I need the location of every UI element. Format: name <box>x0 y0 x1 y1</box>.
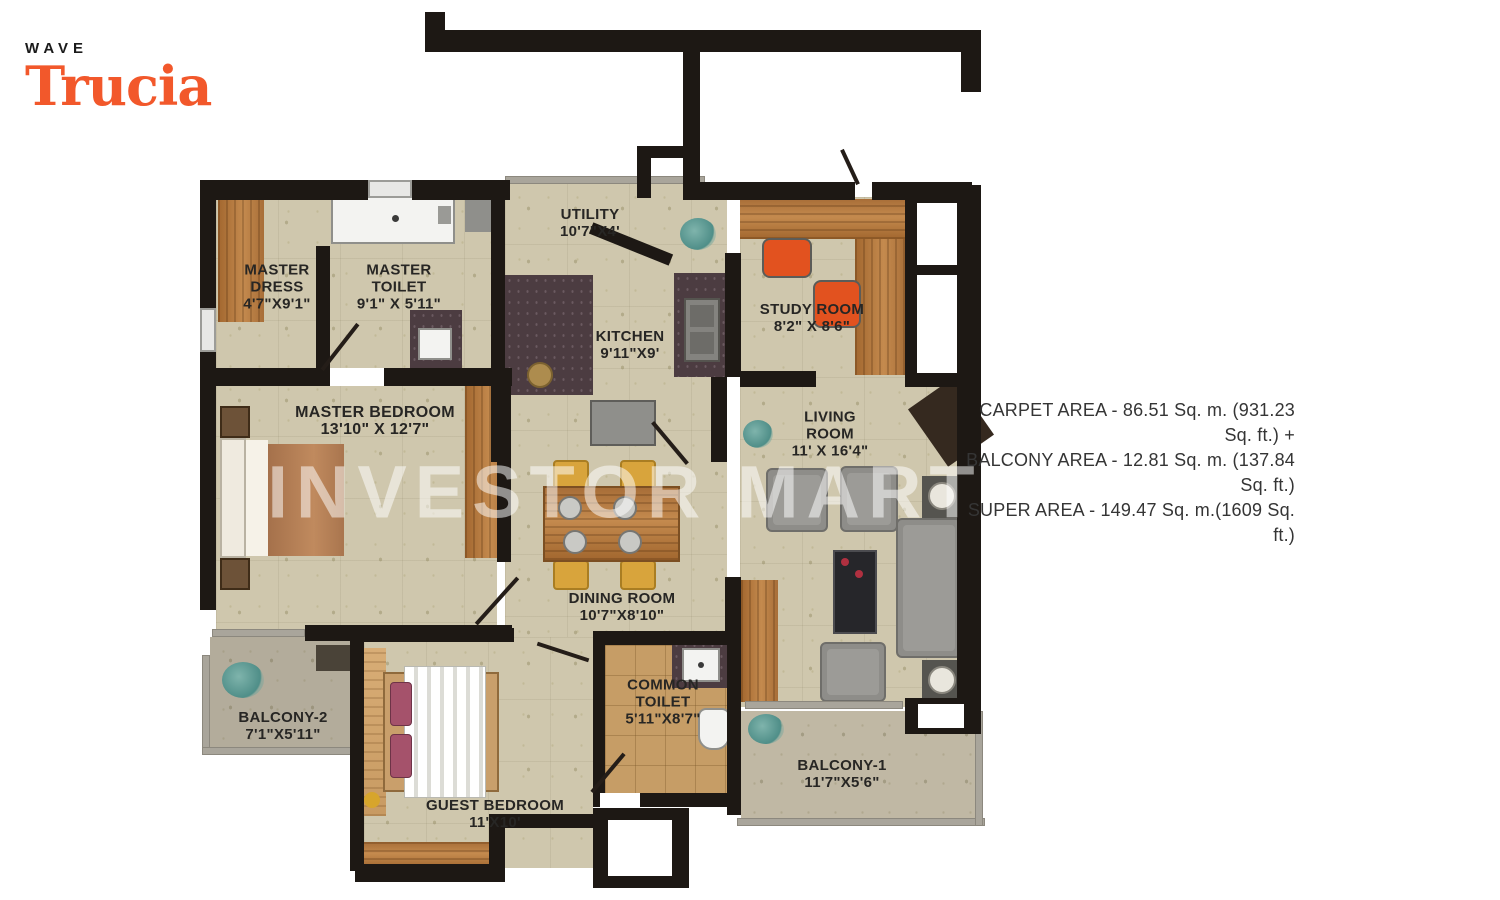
wall <box>683 52 700 198</box>
plant-balcony-2 <box>222 662 264 698</box>
study-chair <box>762 238 812 278</box>
label-dining: DINING ROOM10'7"X8'10" <box>569 590 676 624</box>
wall <box>725 577 741 637</box>
shower-drain <box>698 662 704 668</box>
window <box>368 180 412 198</box>
wall <box>350 641 364 871</box>
plant-utility <box>680 218 716 250</box>
wall <box>727 631 741 815</box>
guest-bed-duvet <box>404 666 486 798</box>
label-common-toilet: COMMONTOILET5'11"X8'7" <box>625 677 700 728</box>
bed-pillows <box>220 438 246 558</box>
balcony-2-rail <box>202 655 210 755</box>
shaft-niche <box>917 203 957 265</box>
decor-dot <box>855 570 863 578</box>
balcony-2-slider <box>212 629 305 637</box>
balcony-2-rail <box>202 747 356 755</box>
nightstand <box>220 558 250 590</box>
bathtub-faucet <box>438 206 451 224</box>
shaft <box>608 820 672 876</box>
label-master-toilet: MASTERTOILET9'1" X 5'11" <box>357 262 441 313</box>
label-balcony-1: BALCONY-111'7"X5'6" <box>797 757 886 791</box>
wall <box>355 864 505 882</box>
label-guest-bedroom: GUEST BEDROOM11'X10' <box>426 797 564 831</box>
guest-pillow <box>390 682 412 726</box>
coffee-table <box>833 550 877 634</box>
stove-burner <box>690 305 714 327</box>
fridge <box>590 400 656 446</box>
window <box>200 308 216 352</box>
guest-pillow <box>390 734 412 778</box>
plant-living <box>743 420 773 448</box>
door-leaf <box>840 149 860 185</box>
balcony-1-rail <box>737 818 985 826</box>
label-kitchen: KITCHEN9'11"X9' <box>596 328 665 362</box>
door-opening <box>600 793 640 807</box>
sofa <box>896 518 962 658</box>
shaft-niche <box>917 275 957 373</box>
wall <box>683 182 855 200</box>
wall <box>200 180 368 200</box>
label-study: STUDY ROOM8'2" X 8'6" <box>760 301 864 335</box>
label-utility: UTILITY10'7"X4' <box>560 206 620 240</box>
brand-trucia-text: Trucia <box>25 59 211 113</box>
bed-sheet <box>246 440 268 556</box>
wc <box>698 708 730 750</box>
armchair <box>820 642 886 702</box>
decor-dot <box>841 558 849 566</box>
dining-chair <box>620 560 656 590</box>
bathtub-drain <box>392 215 399 222</box>
toilet-sink <box>418 328 452 360</box>
sideboard <box>741 580 778 702</box>
table-lamp <box>928 666 956 694</box>
wall <box>364 628 514 642</box>
balcony-area-line: BALCONY AREA - 12.81 Sq. m. (137.84 Sq. … <box>960 448 1295 498</box>
label-balcony-2: BALCONY-27'1"X5'11" <box>238 709 327 743</box>
wall <box>593 631 740 645</box>
kitchen-sink <box>527 362 553 388</box>
window-niche <box>918 704 964 728</box>
floor-plan-page: WAVE Trucia <box>0 0 1500 900</box>
wall <box>725 253 741 377</box>
brand-logo: WAVE Trucia <box>25 40 211 113</box>
wall <box>740 371 816 387</box>
living-balcony-slider <box>745 701 903 709</box>
stove-burner <box>690 332 714 354</box>
watermark: INVESTOR MART <box>267 450 982 535</box>
wall <box>200 352 216 610</box>
label-master-dress: MASTERDRESS4'7"X9'1" <box>243 262 310 313</box>
door-opening <box>330 368 384 386</box>
dining-chair <box>553 560 589 590</box>
wall <box>637 146 699 158</box>
area-summary: CARPET AREA - 86.51 Sq. m. (931.23 Sq. f… <box>960 398 1295 548</box>
study-desk-top <box>740 199 907 239</box>
decor-plate <box>364 792 380 808</box>
wall <box>316 246 330 370</box>
carpet-area-line: CARPET AREA - 86.51 Sq. m. (931.23 Sq. f… <box>960 398 1295 448</box>
utility-window-rail <box>505 176 705 184</box>
label-master-bedroom: MASTER BEDROOM13'10" X 12'7" <box>295 404 455 438</box>
wall <box>961 30 981 92</box>
plant-balcony-1 <box>748 714 784 744</box>
nightstand <box>220 406 250 438</box>
wall <box>425 30 981 52</box>
wall <box>200 180 216 308</box>
super-area-line: SUPER AREA - 149.47 Sq. m.(1609 Sq. ft.) <box>960 498 1295 548</box>
